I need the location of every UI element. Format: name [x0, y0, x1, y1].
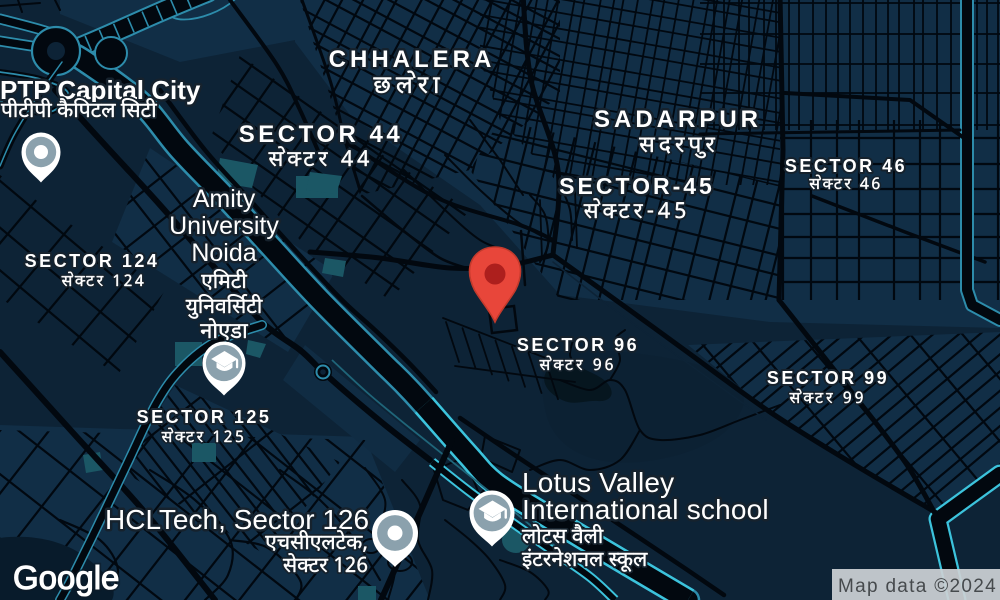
svg-text:Map data ©2024: Map data ©2024 — [838, 576, 997, 597]
svg-text:Amity: Amity — [193, 185, 256, 213]
svg-text:HCLTech, Sector 126: HCLTech, Sector 126 — [105, 504, 369, 535]
svg-text:International school: International school — [522, 494, 769, 525]
svg-text:SECTOR 124: SECTOR 124 — [25, 251, 160, 271]
svg-text:SECTOR 99: SECTOR 99 — [767, 368, 889, 388]
svg-text:Google: Google — [13, 559, 119, 596]
svg-text:SADARPUR: SADARPUR — [594, 106, 762, 133]
svg-text:SECTOR 44: SECTOR 44 — [239, 121, 403, 148]
svg-text:SECTOR 46: SECTOR 46 — [785, 156, 907, 176]
svg-text:SECTOR 125: SECTOR 125 — [137, 407, 272, 427]
svg-text:University: University — [169, 212, 279, 240]
svg-text:SECTOR 96: SECTOR 96 — [517, 335, 639, 355]
svg-text:SECTOR-45: SECTOR-45 — [559, 173, 715, 199]
svg-text:Noida: Noida — [191, 239, 256, 267]
